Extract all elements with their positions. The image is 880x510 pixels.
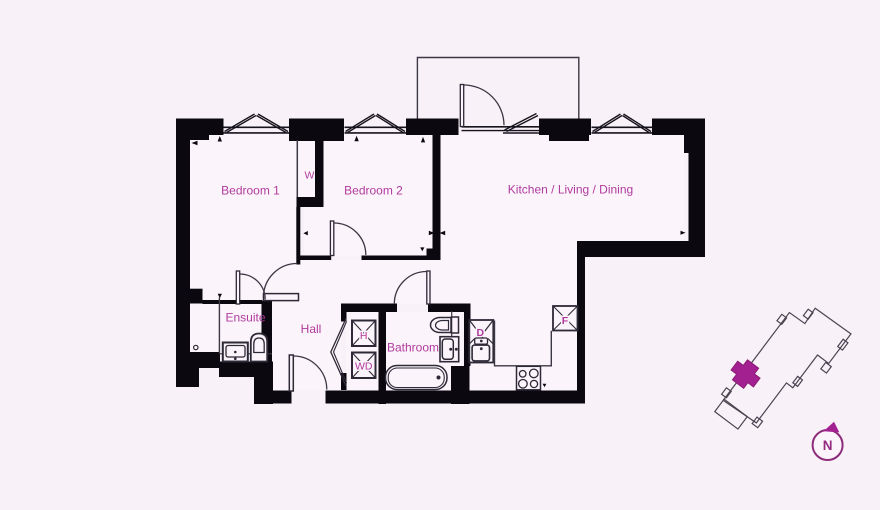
- svg-text:Bathroom: Bathroom: [387, 341, 439, 355]
- svg-text:Bedroom 2: Bedroom 2: [344, 184, 403, 198]
- svg-text:D: D: [477, 327, 485, 339]
- svg-text:H: H: [360, 330, 368, 342]
- svg-text:Kitchen / Living / Dining: Kitchen / Living / Dining: [508, 183, 633, 197]
- svg-text:Ensuite: Ensuite: [225, 311, 265, 325]
- svg-text:F: F: [562, 315, 569, 327]
- svg-text:Hall: Hall: [301, 322, 322, 336]
- svg-text:WD: WD: [355, 361, 373, 373]
- svg-text:Bedroom 1: Bedroom 1: [221, 184, 280, 198]
- svg-text:N: N: [823, 438, 833, 453]
- svg-text:W: W: [305, 170, 315, 182]
